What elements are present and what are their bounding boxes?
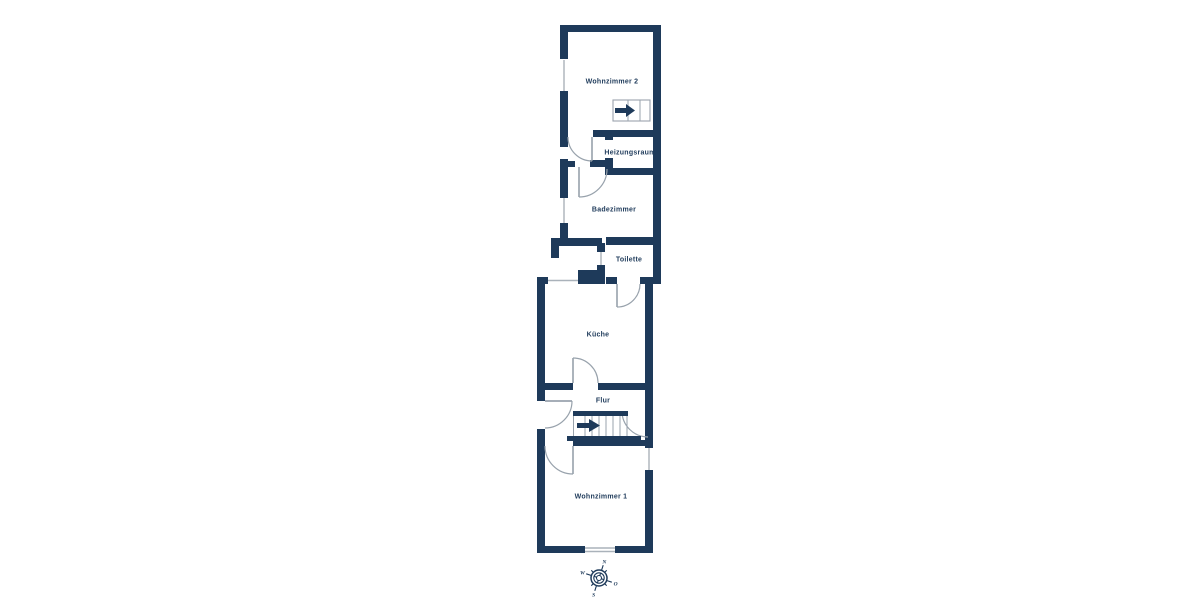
compass-south-label: S — [592, 593, 595, 599]
room-label-kueche: Küche — [587, 332, 610, 339]
room-label-wohnzimmer-1: Wohnzimmer 1 — [575, 494, 628, 501]
room-label-flur: Flur — [596, 398, 610, 405]
floor-plan-drawing: N O S W — [0, 0, 1200, 600]
room-label-badezimmer: Badezimmer — [592, 207, 636, 214]
door-kueche — [573, 358, 598, 383]
compass-rose: N O S W — [580, 559, 618, 598]
door-badezimmer — [579, 167, 607, 197]
door-wohnzimmer-1 — [545, 446, 573, 474]
compass-west-label: W — [580, 571, 586, 577]
room-label-heizungsraum: Heizungsraum — [604, 150, 655, 157]
compass-north-label: N — [601, 559, 607, 565]
room-label-toilette: Toilette — [616, 257, 642, 264]
compass-east-label: O — [614, 581, 618, 587]
door-toilette — [617, 284, 640, 307]
floor-plan-page: N O S W Wohnzimmer 2 Heizungsraum Badezi… — [0, 0, 1200, 600]
door-entrance — [545, 401, 572, 428]
stair-flur — [567, 411, 641, 441]
stair-arrow-icon — [577, 419, 600, 432]
room-label-wohnzimmer-2: Wohnzimmer 2 — [586, 79, 639, 86]
stair-wohnzimmer-2 — [613, 100, 650, 121]
door-wohnzimmer-2 — [568, 137, 592, 161]
